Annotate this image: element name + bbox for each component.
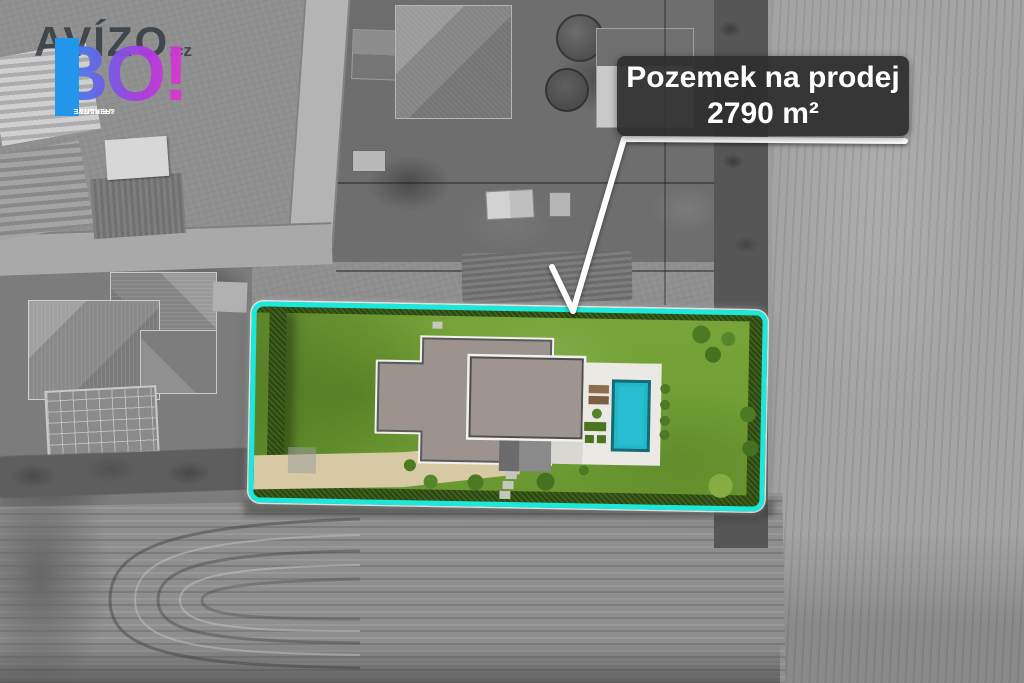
tilled-garden-patch <box>462 251 633 304</box>
neighbor-house <box>90 173 186 239</box>
label-title: Pozemek na prodej <box>626 60 899 96</box>
ground-sign <box>352 150 386 172</box>
solar-panel-garage <box>44 385 159 459</box>
land-for-sale-label: Pozemek na prodej 2790 m² <box>617 56 909 136</box>
swimming-pool <box>612 381 649 451</box>
label-area: 2790 m² <box>707 96 819 132</box>
aerial-photo-listing: Pozemek na prodej 2790 m² AVÍZO.cz BO! R… <box>0 0 1024 683</box>
garden-sheds <box>485 189 534 220</box>
villa-roof-right <box>469 357 582 438</box>
agency-logo: AVÍZO.cz BO! REALITY & FINANCE <box>34 18 264 128</box>
garden-shed <box>549 192 571 217</box>
round-tank <box>545 68 589 112</box>
driveway-pad <box>212 281 247 312</box>
power-line <box>664 0 666 305</box>
logo-tagline-box: REALITY & FINANCE <box>55 38 79 116</box>
hip-roof-house <box>395 5 512 119</box>
logo-tagline-text: REALITY & FINANCE <box>55 38 79 116</box>
plow-turn-rows <box>40 505 360 683</box>
villa-render <box>253 306 762 506</box>
plot-boundary <box>248 301 768 511</box>
white-shed <box>105 136 170 180</box>
ribbed-building <box>0 140 94 240</box>
